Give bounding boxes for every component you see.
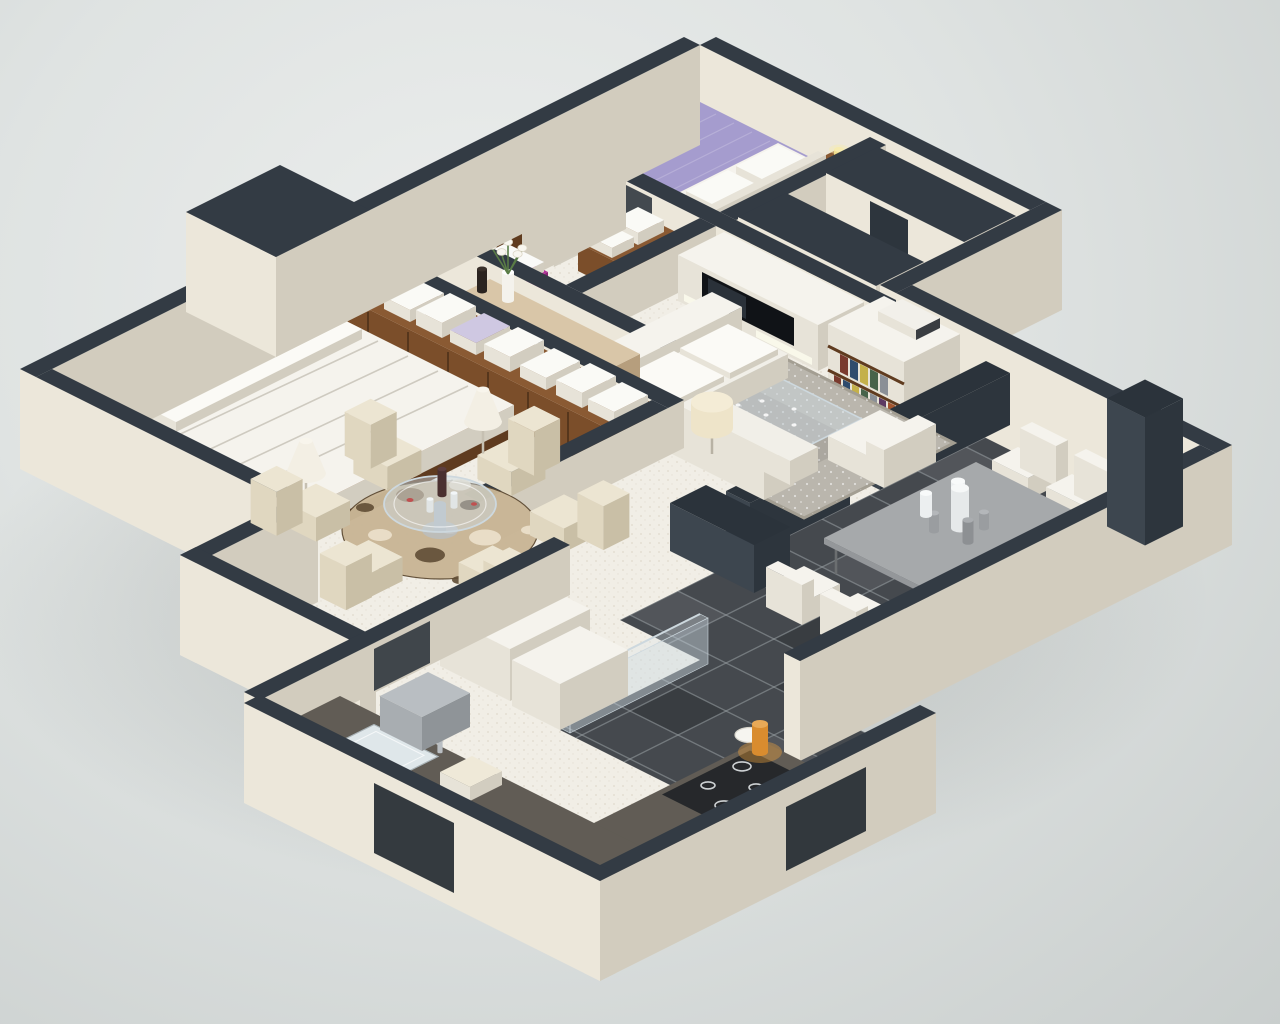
drum-lamp-top <box>691 392 733 413</box>
nook-glass-1-top <box>451 491 458 495</box>
nook-rug-circle2 <box>469 530 501 546</box>
nook-wine-bottle <box>438 469 447 497</box>
nook-flowers-2 <box>471 502 477 506</box>
floorplan-canvas <box>0 0 1280 1024</box>
nook-wine-bottle-top <box>438 467 447 472</box>
nook-flowers-1 <box>407 498 414 502</box>
nook-glass-2 <box>427 499 434 513</box>
floor-lamp-nook-top <box>477 386 489 392</box>
interior-wall-master-north-se <box>668 400 684 456</box>
dining-vase-5 <box>963 520 974 545</box>
coffee-table-deco1 <box>759 399 764 402</box>
nook-glass-1 <box>451 493 458 509</box>
exterior-wall-dining-north-se <box>1216 445 1232 553</box>
statue-top <box>477 267 487 272</box>
dining-vase-2-top <box>951 484 969 493</box>
dining-vase-1-top <box>951 478 965 485</box>
dining-vase-5-top <box>963 517 974 523</box>
dining-chair-s0-back-se <box>802 579 814 625</box>
floorplan-3d-render <box>0 0 1280 1024</box>
dining-vase-4-top <box>979 510 989 515</box>
flower-vase <box>502 272 514 303</box>
coffee-table-deco3 <box>791 423 796 426</box>
exterior-wall-west-sw <box>20 369 36 477</box>
orange-lamp-top <box>752 720 768 728</box>
dining-vase-4 <box>979 512 989 531</box>
pillar-se <box>1145 399 1183 546</box>
coffee-table-deco5 <box>763 413 768 416</box>
nook-rug-circle5 <box>368 529 392 541</box>
dining-vase-6-top <box>920 490 932 496</box>
pillar-sw <box>1107 399 1145 546</box>
nook-glass-2-top <box>427 497 434 501</box>
coffee-table-deco2 <box>791 407 796 410</box>
nook-rug-circle6 <box>356 503 374 512</box>
nook-rug-circle4 <box>415 548 445 563</box>
exterior-wall-kitchen-south-se <box>600 873 616 981</box>
exterior-wall-dining-east-sw <box>784 653 800 761</box>
orange-lamp <box>752 724 768 756</box>
dining-vase-6 <box>920 493 932 518</box>
floor-lamp-master-top <box>300 438 313 444</box>
statue <box>477 269 487 294</box>
